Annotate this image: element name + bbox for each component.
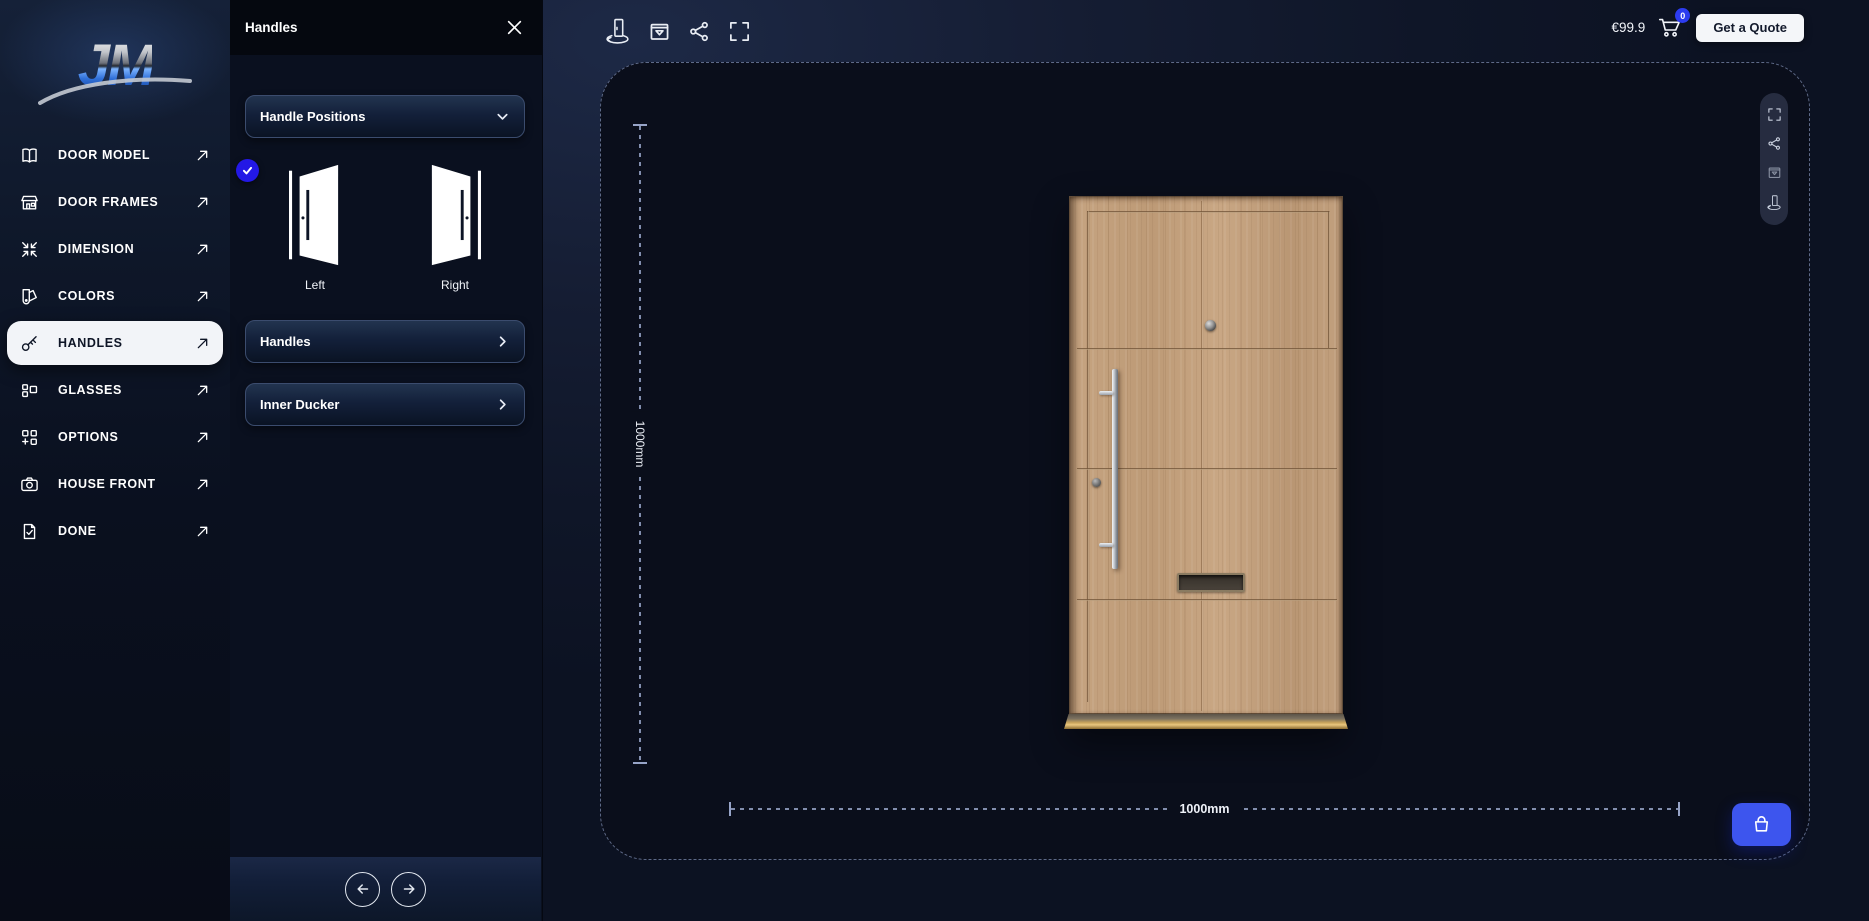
dropdown-label: Handle Positions <box>260 109 365 124</box>
door-rotate-icon[interactable] <box>604 17 631 45</box>
handles-panel: Handles Handle Positions Left <box>230 0 543 921</box>
sidebar-item-house-front[interactable]: HOUSE FRONT <box>7 462 223 506</box>
storefront-icon <box>19 192 39 212</box>
panel-footer <box>230 857 541 921</box>
fullscreen-icon[interactable] <box>728 20 751 43</box>
sidebar-item-label: OPTIONS <box>58 430 196 444</box>
accordion-label: Inner Ducker <box>260 397 339 412</box>
dimension-tick <box>1678 802 1680 816</box>
get-a-quote-button[interactable]: Get a Quote <box>1696 14 1804 42</box>
door-3d-canvas[interactable]: 1000mm 1000mm <box>600 62 1810 860</box>
position-option-right[interactable]: Right <box>394 163 516 292</box>
height-dimension-label: 1000mm <box>631 412 649 477</box>
viewer-toolbar <box>604 13 751 49</box>
sidebar-item-label: DOOR FRAMES <box>58 195 196 209</box>
logo-swoosh <box>38 72 193 106</box>
file-check-icon <box>19 521 39 541</box>
external-arrow-icon <box>196 431 209 444</box>
sidebar-item-label: DONE <box>58 524 196 538</box>
external-arrow-icon <box>196 290 209 303</box>
external-arrow-icon <box>196 243 209 256</box>
external-arrow-icon <box>196 478 209 491</box>
sidebar-item-done[interactable]: DONE <box>7 509 223 553</box>
door-left-icon <box>288 163 342 267</box>
handles-accordion[interactable]: Handles <box>245 320 525 363</box>
glass-panels-icon <box>19 380 39 400</box>
peephole <box>1205 320 1216 331</box>
position-option-left[interactable]: Left <box>254 163 376 292</box>
panel-header: Handles <box>230 0 542 55</box>
sidebar-item-label: HOUSE FRONT <box>58 477 196 491</box>
sidebar-item-door-frames[interactable]: DOOR FRAMES <box>7 180 223 224</box>
cart-icon[interactable]: 0 <box>1658 16 1683 39</box>
chevron-right-icon <box>495 397 510 412</box>
door-groove <box>1077 599 1337 601</box>
next-step-button[interactable] <box>391 872 426 907</box>
camera-icon <box>19 474 39 494</box>
compress-arrows-icon <box>19 239 39 259</box>
external-arrow-icon <box>196 149 209 162</box>
shopping-bag-icon <box>1751 814 1772 835</box>
handle-positions-dropdown[interactable]: Handle Positions <box>245 95 525 138</box>
box-preview-icon[interactable] <box>1767 165 1782 180</box>
sidebar-item-door-model[interactable]: DOOR MODEL <box>7 133 223 177</box>
sidebar-item-colors[interactable]: COLORS <box>7 274 223 318</box>
box-preview-icon[interactable] <box>648 20 671 43</box>
letterbox <box>1177 573 1245 592</box>
chevron-down-icon <box>495 109 510 124</box>
inner-ducker-accordion[interactable]: Inner Ducker <box>245 383 525 426</box>
wood-seam <box>1201 201 1202 711</box>
header-actions: €99.9 0 Get a Quote <box>1612 0 1804 55</box>
previous-step-button[interactable] <box>345 872 380 907</box>
sidebar-menu: DOOR MODEL DOOR FRAMES DIMENSION <box>0 131 230 556</box>
external-arrow-icon <box>196 337 209 350</box>
width-dimension-label: 1000mm <box>1167 802 1241 816</box>
door-groove <box>1077 348 1337 350</box>
chevron-right-icon <box>495 334 510 349</box>
sidebar-item-label: DOOR MODEL <box>58 148 196 162</box>
door-render <box>1069 196 1343 729</box>
add-to-cart-button[interactable] <box>1732 803 1791 846</box>
sidebar-item-label: COLORS <box>58 289 196 303</box>
panel-title: Handles <box>245 20 298 35</box>
external-arrow-icon <box>196 196 209 209</box>
door-groove <box>1087 211 1330 213</box>
sidebar-item-label: GLASSES <box>58 383 196 397</box>
width-dimension: 1000mm <box>729 802 1680 816</box>
sidebar-item-label: HANDLES <box>58 336 196 350</box>
height-dimension: 1000mm <box>633 124 647 764</box>
handle-position-options: Left Right <box>245 163 525 292</box>
position-label: Left <box>305 278 325 292</box>
key-icon <box>19 333 39 353</box>
fullscreen-icon[interactable] <box>1767 107 1782 122</box>
cart-count-badge: 0 <box>1675 8 1690 23</box>
external-arrow-icon <box>196 525 209 538</box>
door-groove <box>1087 211 1089 702</box>
door-leaf <box>1069 196 1343 714</box>
position-label: Right <box>441 278 469 292</box>
dimension-tick <box>633 762 647 764</box>
canvas-side-toolbar <box>1760 93 1788 225</box>
accordion-label: Handles <box>260 334 311 349</box>
selected-check-icon <box>236 159 259 182</box>
price-label: €99.9 <box>1612 20 1646 35</box>
viewer-area: €99.9 0 Get a Quote 1000mm <box>543 0 1869 921</box>
brand-logo: JM <box>0 14 230 118</box>
door-groove <box>1328 211 1330 348</box>
sidebar-item-glasses[interactable]: GLASSES <box>7 368 223 412</box>
sidebar-item-dimension[interactable]: DIMENSION <box>7 227 223 271</box>
sidebar-item-label: DIMENSION <box>58 242 196 256</box>
door-handle-bar <box>1112 369 1118 569</box>
grid-plus-icon <box>19 427 39 447</box>
book-icon <box>19 145 39 165</box>
swatch-icon <box>19 286 39 306</box>
sidebar: JM DOOR MODEL DOOR FRAMES <box>0 0 230 921</box>
external-arrow-icon <box>196 384 209 397</box>
sidebar-item-handles[interactable]: HANDLES <box>7 321 223 365</box>
handle-bracket <box>1099 543 1113 547</box>
lock-cylinder <box>1092 478 1101 487</box>
share-icon[interactable] <box>688 20 711 43</box>
sidebar-item-options[interactable]: OPTIONS <box>7 415 223 459</box>
door-threshold <box>1064 714 1348 729</box>
door-right-icon <box>428 163 482 267</box>
handle-bracket <box>1099 391 1113 395</box>
door-rotate-icon[interactable] <box>1766 194 1782 211</box>
share-icon[interactable] <box>1767 136 1782 151</box>
close-icon[interactable] <box>501 15 527 41</box>
